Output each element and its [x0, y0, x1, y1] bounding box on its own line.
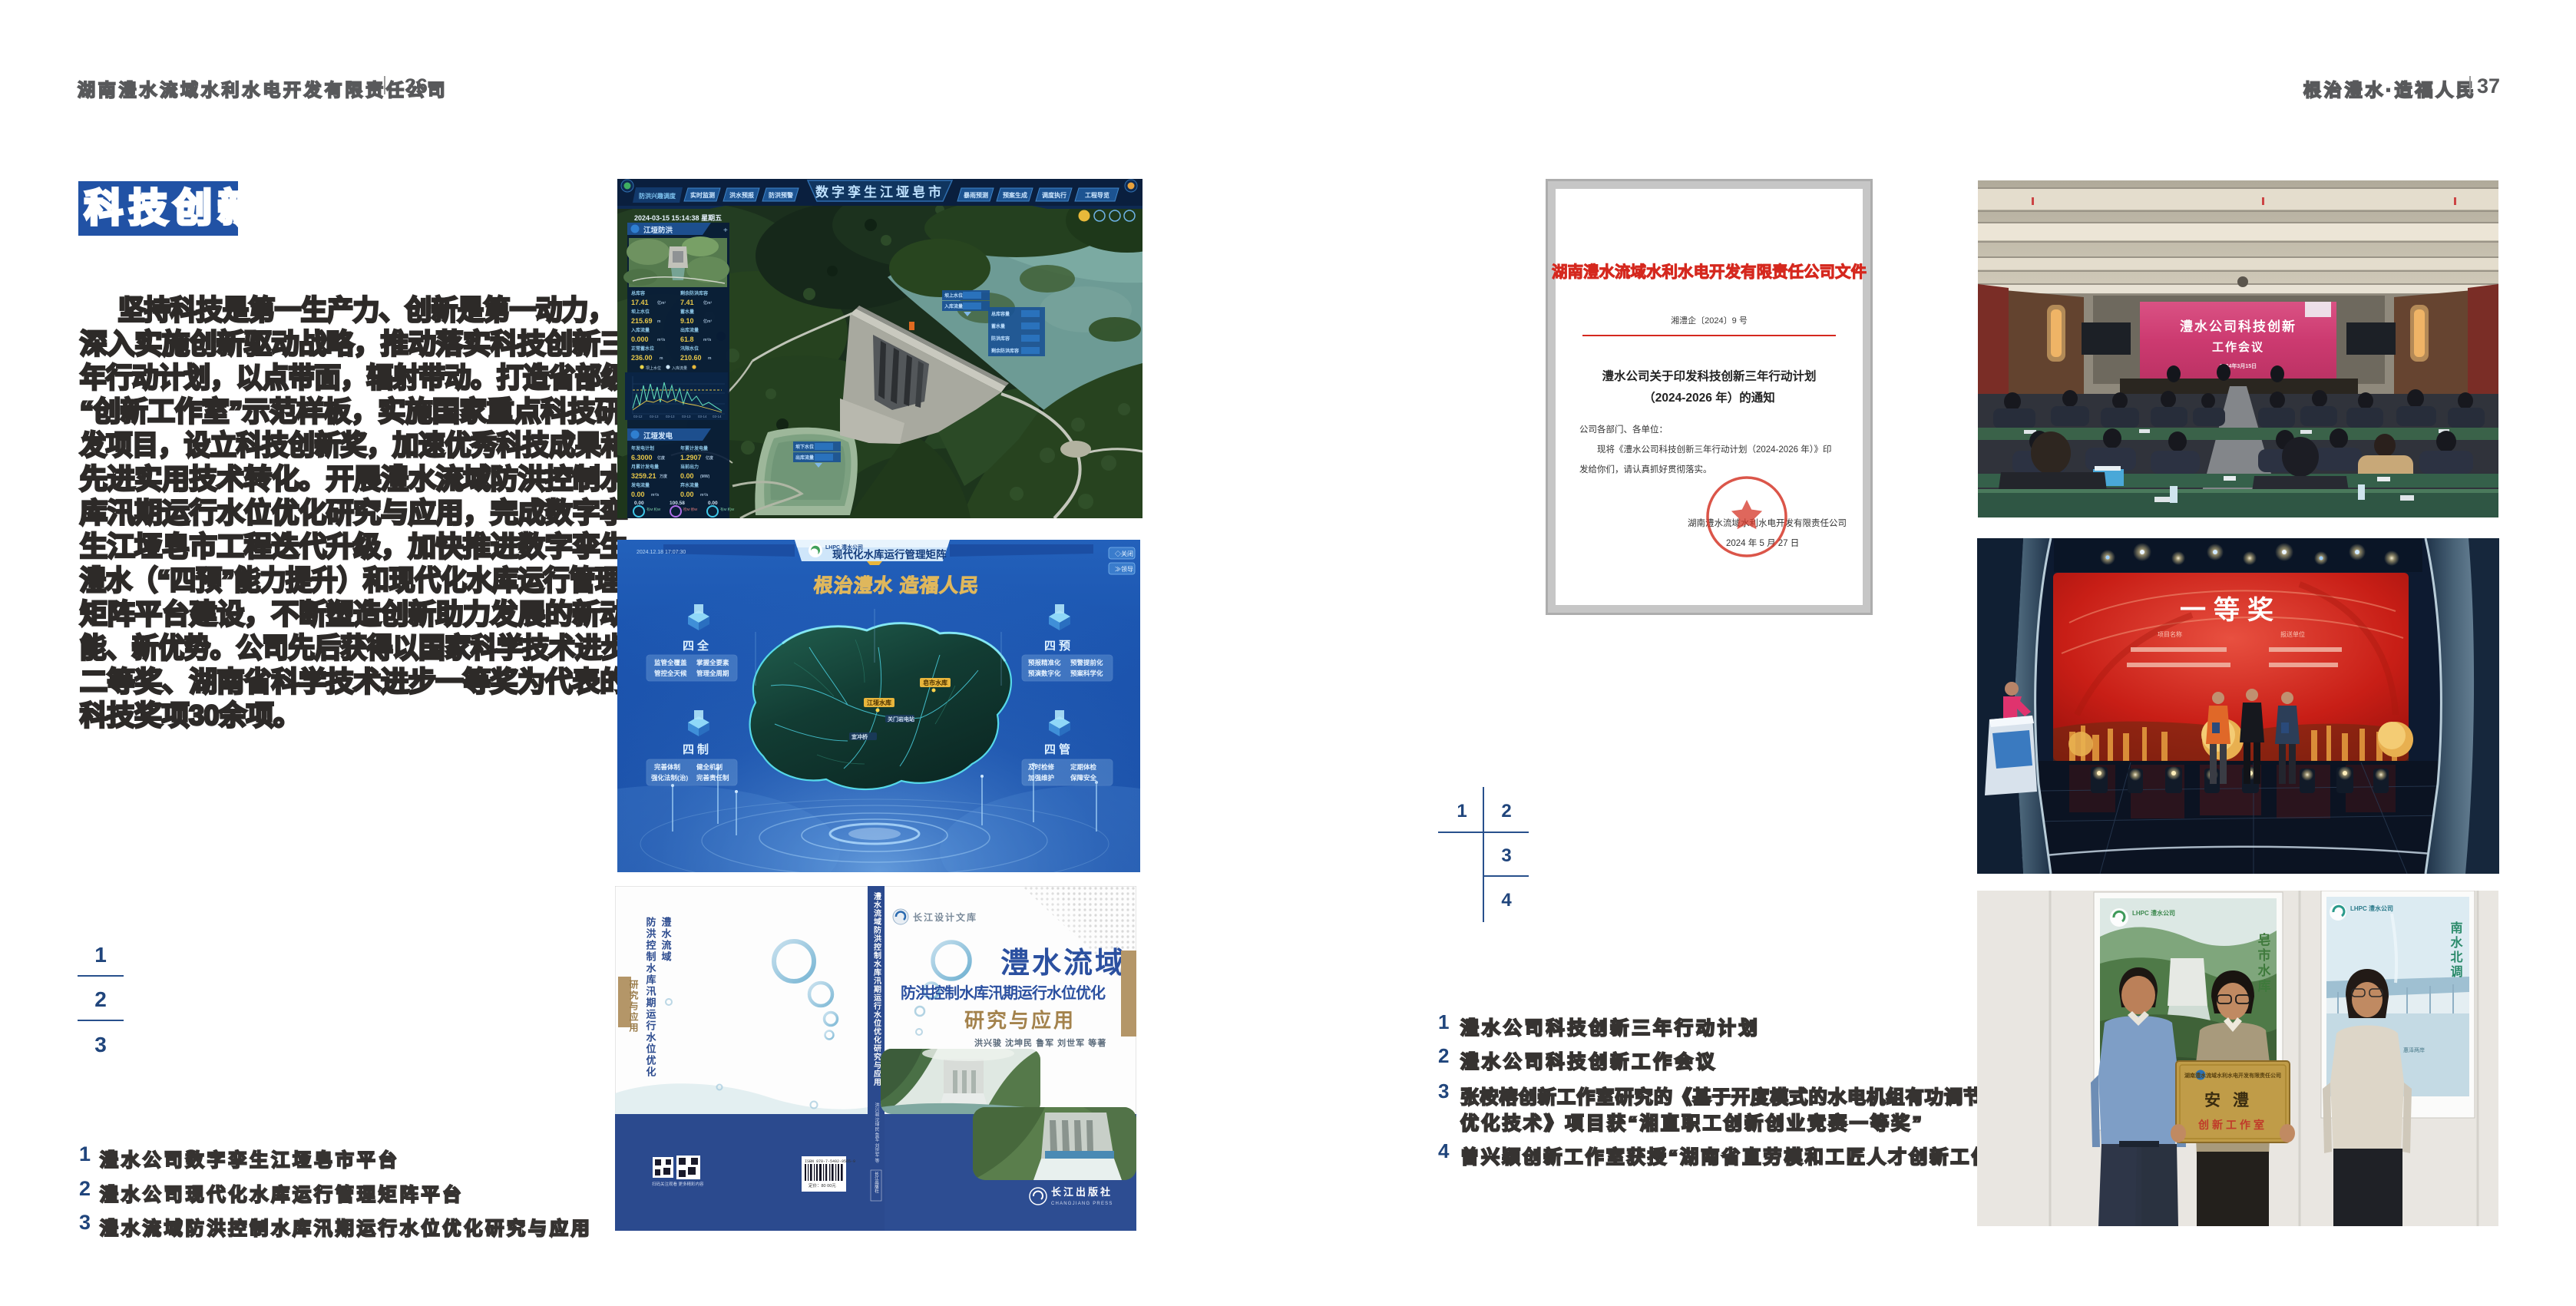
svg-text:江垭水库: 江垭水库	[867, 699, 891, 706]
svg-text:预案科学化: 预案科学化	[1070, 670, 1103, 677]
svg-text:防洪兴趣调度: 防洪兴趣调度	[639, 192, 676, 200]
svg-text:蓄水量: 蓄水量	[991, 323, 1005, 329]
svg-text:03-14: 03-14	[713, 415, 722, 418]
svg-text:2024-03-15 15:14:38 星期五: 2024-03-15 15:14:38 星期五	[634, 213, 722, 222]
svg-text:澧水流域: 澧水流域	[1000, 947, 1126, 980]
svg-text:正常蓄水位: 正常蓄水位	[631, 346, 654, 352]
svg-text:预演数字化: 预演数字化	[1028, 670, 1061, 677]
svg-text:剩余防洪库容: 剩余防洪库容	[991, 348, 1019, 354]
svg-text:有M 机W: 有M 机W	[720, 507, 735, 512]
svg-text:坝上水位: 坝上水位	[631, 309, 650, 315]
svg-text:扫码关注观看 更多精彩内容: 扫码关注观看 更多精彩内容	[652, 1181, 704, 1187]
svg-text:预报精准化: 预报精准化	[1028, 659, 1061, 666]
svg-text:创新工作室: 创新工作室	[2197, 1119, 2267, 1131]
svg-text:数字孪生江垭皂市: 数字孪生江垭皂市	[815, 184, 944, 200]
svg-text:总库容: 总库容	[631, 290, 645, 296]
svg-text:研究与应用: 研究与应用	[628, 980, 639, 1033]
svg-text:弃水流量: 弃水流量	[680, 482, 699, 488]
svg-text:出库流量: 出库流量	[795, 455, 814, 461]
svg-text:一等奖: 一等奖	[2180, 596, 2281, 625]
svg-text:236.00: 236.00	[631, 354, 653, 362]
svg-text:管理全周期: 管理全周期	[696, 670, 729, 677]
svg-text:公司各部门、各单位：: 公司各部门、各单位：	[1579, 424, 1668, 435]
svg-text:亿m³: 亿m³	[657, 300, 666, 306]
svg-text:m³/s: m³/s	[651, 493, 660, 498]
svg-text:215.69: 215.69	[631, 317, 653, 325]
svg-text:03-13: 03-13	[682, 415, 691, 418]
svg-text:0.000: 0.000	[631, 336, 649, 343]
svg-text:防洪控制水库汛期运行水位优化: 防洪控制水库汛期运行水位优化	[901, 984, 1106, 1002]
svg-text:监管全覆盖: 监管全覆盖	[654, 659, 687, 666]
svg-text:蓄水量: 蓄水量	[680, 309, 694, 315]
svg-text:预警提前化: 预警提前化	[1070, 659, 1103, 666]
svg-text:m: m	[657, 319, 661, 324]
svg-text:9.10: 9.10	[680, 317, 694, 325]
svg-text:+: +	[723, 226, 728, 235]
svg-text:洪水预报: 洪水预报	[729, 191, 754, 199]
svg-text:入库流量: 入库流量	[630, 327, 650, 333]
svg-text:总库容量: 总库容量	[991, 311, 1010, 317]
svg-text:长江出版社: 长江出版社	[1051, 1186, 1113, 1198]
svg-text:湖南澧水流域水利水电开发有限责任公司: 湖南澧水流域水利水电开发有限责任公司	[1688, 517, 1847, 528]
svg-text:坝上水位: 坝上水位	[646, 365, 661, 371]
svg-text:CHANGJIANG PRESS: CHANGJIANG PRESS	[1051, 1202, 1113, 1206]
svg-text:◇关闭: ◇关闭	[1115, 550, 1133, 557]
svg-text:LHPC 澧水公司: LHPC 澧水公司	[2132, 909, 2175, 917]
svg-text:m: m	[660, 356, 663, 361]
svg-text:m: m	[708, 356, 712, 361]
svg-text:四预: 四预	[1044, 640, 1073, 653]
svg-text:暴雨预测: 暴雨预测	[963, 191, 988, 199]
svg-text:03-13: 03-13	[650, 415, 659, 418]
svg-text:17.41: 17.41	[631, 299, 649, 306]
svg-text:洪兴骏 沈坤民 鲁军 刘世军 等: 洪兴骏 沈坤民 鲁军 刘世军 等	[874, 1102, 879, 1163]
svg-text:研究与应用: 研究与应用	[964, 1009, 1076, 1032]
svg-text:有M 机W: 有M 机W	[646, 507, 661, 512]
svg-text:月累计发电量: 月累计发电量	[630, 464, 659, 470]
svg-text:1.2907: 1.2907	[680, 454, 702, 461]
svg-text:0.00: 0.00	[631, 491, 645, 498]
svg-text:0.00: 0.00	[680, 491, 694, 498]
svg-text:现将《澧水公司科技创新三年行动计划（2024-2026 年）: 现将《澧水公司科技创新三年行动计划（2024-2026 年）》印	[1597, 444, 1831, 455]
svg-text:210.60: 210.60	[680, 354, 702, 362]
svg-text:3259.21: 3259.21	[631, 472, 656, 480]
svg-text:健全机制: 健全机制	[696, 763, 723, 771]
svg-text:出库流量: 出库流量	[680, 327, 699, 333]
svg-text:0.00: 0.00	[680, 472, 694, 480]
svg-text:长江设计文库: 长江设计文库	[913, 911, 977, 923]
svg-text:ISBN 978-7-5492-9565-9: ISBN 978-7-5492-9565-9	[805, 1159, 855, 1164]
svg-text:6.3000: 6.3000	[631, 454, 653, 461]
svg-text:四全: 四全	[683, 639, 712, 653]
svg-text:03-13: 03-13	[666, 415, 675, 418]
svg-text:7.41: 7.41	[680, 299, 694, 306]
svg-text:江垭防洪: 江垭防洪	[643, 226, 673, 235]
svg-text:完善体制: 完善体制	[654, 763, 681, 771]
svg-text:定期体检: 定期体检	[1070, 763, 1097, 771]
svg-text:m³/s: m³/s	[657, 338, 666, 342]
svg-text:长江出版社: 长江出版社	[874, 1171, 879, 1194]
svg-text:亿m³: 亿m³	[703, 300, 712, 306]
svg-text:洪兴骏 沈坤民 鲁军 刘世军 等著: 洪兴骏 沈坤民 鲁军 刘世军 等著	[974, 1037, 1106, 1048]
svg-text:坝下水位: 坝下水位	[795, 444, 814, 450]
svg-text:≫领导: ≫领导	[1115, 565, 1133, 573]
svg-text:强化法制(治): 强化法制(治)	[651, 774, 688, 782]
svg-text:入库流量: 入库流量	[672, 365, 687, 371]
svg-text:亿度: 亿度	[706, 455, 714, 461]
svg-text:皂市水库: 皂市水库	[923, 679, 947, 686]
svg-text:完善责任制: 完善责任制	[696, 774, 729, 782]
svg-text:预案生成: 预案生成	[1003, 191, 1027, 199]
svg-text:皂市水库: 皂市水库	[2256, 932, 2271, 994]
svg-text:宜冲桥: 宜冲桥	[852, 733, 868, 740]
svg-text:万度: 万度	[659, 474, 668, 479]
svg-text:年累计发电量: 年累计发电量	[680, 445, 708, 451]
svg-text:四管: 四管	[1044, 742, 1073, 756]
svg-text:南水北调: 南水北调	[2449, 921, 2463, 980]
svg-text:0.00: 0.00	[634, 501, 644, 506]
svg-text:2024 年 5 月 27 日: 2024 年 5 月 27 日	[1726, 537, 1799, 548]
svg-text:工程导览: 工程导览	[1085, 191, 1109, 199]
svg-text:掌握全要素: 掌握全要素	[696, 659, 729, 666]
svg-text:61.8: 61.8	[680, 336, 694, 343]
svg-text:湖南澧水流域水利水电开发有限责任公司: 湖南澧水流域水利水电开发有限责任公司	[2184, 1072, 2281, 1079]
svg-text:年发电计划: 年发电计划	[631, 445, 654, 451]
svg-text:100.58: 100.58	[670, 501, 685, 506]
svg-text:亿m³: 亿m³	[703, 319, 712, 324]
svg-text:保障安全: 保障安全	[1070, 774, 1097, 782]
svg-text:安澧: 安澧	[2204, 1091, 2261, 1109]
svg-text:工作会议: 工作会议	[2212, 340, 2264, 354]
svg-text:（2024-2026 年）的通知: （2024-2026 年）的通知	[1643, 390, 1774, 405]
svg-text:检M 修W: 检M 修W	[683, 507, 698, 512]
svg-text:定价：80 00元: 定价：80 00元	[809, 1182, 836, 1189]
svg-text:现代化水库运行管理矩阵: 现代化水库运行管理矩阵	[832, 548, 947, 560]
svg-text:实时监测: 实时监测	[690, 191, 715, 199]
svg-text:防洪预警: 防洪预警	[769, 191, 793, 199]
svg-text:管控全天候: 管控全天候	[654, 670, 687, 677]
svg-text:澧水公司关于印发科技创新三年行动计划: 澧水公司关于印发科技创新三年行动计划	[1602, 369, 1816, 383]
svg-text:澧水公司科技创新: 澧水公司科技创新	[2180, 319, 2297, 334]
svg-text:发电流量: 发电流量	[630, 482, 650, 488]
svg-text:报送单位: 报送单位	[2280, 630, 2305, 638]
svg-text:2024.12.18 17:07:30: 2024.12.18 17:07:30	[637, 550, 686, 555]
svg-text:0.00: 0.00	[708, 501, 718, 506]
svg-text:湘澧企〔2024〕9 号: 湘澧企〔2024〕9 号	[1671, 315, 1748, 326]
svg-text:加强维护: 加强维护	[1027, 774, 1055, 782]
svg-text:亿度: 亿度	[657, 455, 666, 461]
svg-text:当前出力: 当前出力	[680, 464, 699, 470]
svg-text:03-12: 03-12	[633, 415, 643, 418]
svg-text:发给你们，请认真抓好贯彻落实。: 发给你们，请认真抓好贯彻落实。	[1579, 464, 1712, 474]
svg-text:四制: 四制	[683, 742, 712, 756]
svg-text:剩余防洪库容: 剩余防洪库容	[680, 290, 708, 296]
svg-text:关门岩电站: 关门岩电站	[888, 716, 914, 722]
svg-text:m³/s: m³/s	[700, 493, 709, 498]
svg-text:汛限水位: 汛限水位	[680, 346, 699, 352]
svg-text:根治澧水 造福人民: 根治澧水 造福人民	[812, 574, 980, 597]
svg-text:防洪库容: 防洪库容	[991, 336, 1010, 342]
svg-text:03-14: 03-14	[698, 415, 707, 418]
svg-text:m³/s: m³/s	[703, 338, 712, 342]
svg-text:项目名称: 项目名称	[2158, 630, 2182, 638]
svg-text:LHPC 澧水公司: LHPC 澧水公司	[2350, 904, 2393, 912]
svg-text:(MW): (MW)	[700, 474, 710, 479]
svg-text:入库流量: 入库流量	[944, 303, 963, 309]
svg-text:坝上水位: 坝上水位	[944, 293, 963, 299]
svg-text:江垭发电: 江垭发电	[643, 431, 673, 441]
svg-text:澧水流域: 澧水流域	[660, 916, 672, 963]
svg-text:及时检修: 及时检修	[1028, 763, 1055, 771]
svg-text:调度执行: 调度执行	[1042, 191, 1066, 199]
svg-text:湖南澧水流域水利水电开发有限责任公司文件: 湖南澧水流域水利水电开发有限责任公司文件	[1552, 263, 1867, 281]
svg-text:防洪控制水库汛期运行水位优化: 防洪控制水库汛期运行水位优化	[645, 916, 657, 1078]
